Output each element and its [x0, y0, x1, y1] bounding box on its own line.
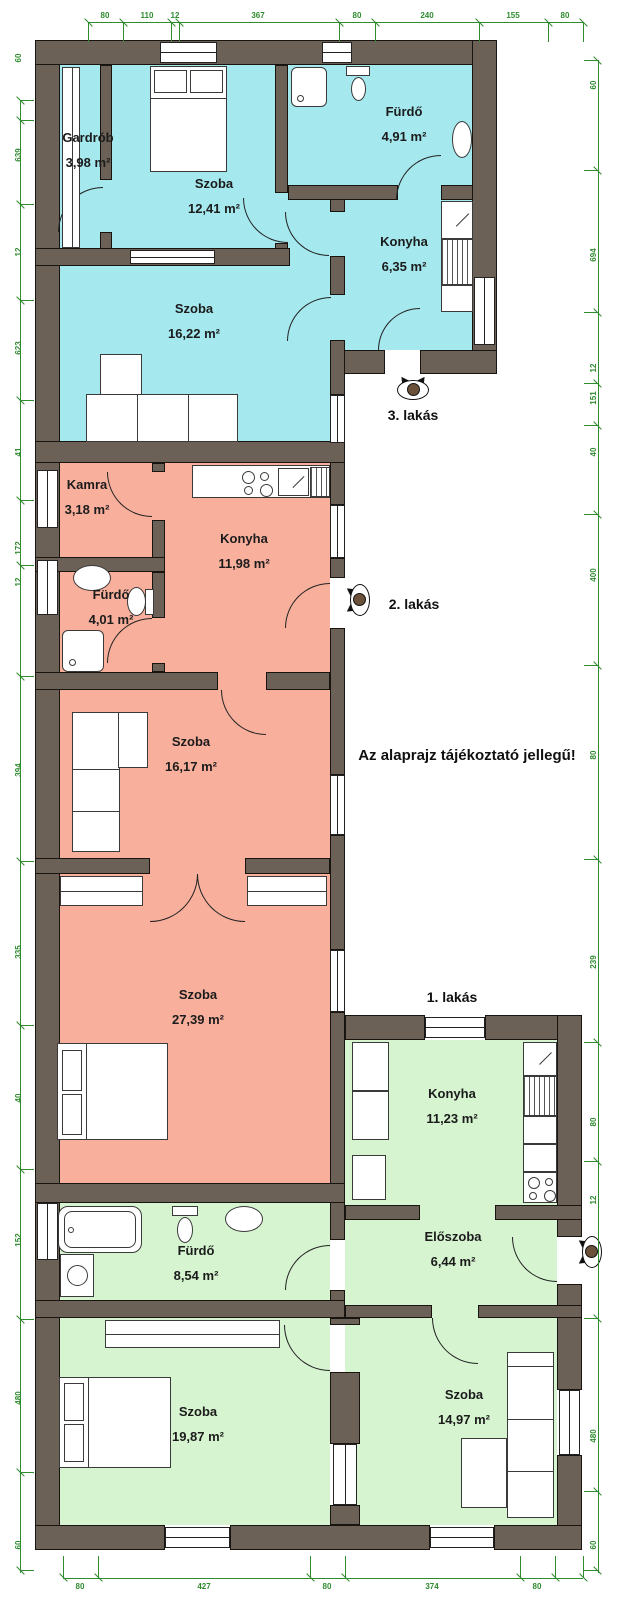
dimension-tick	[88, 22, 89, 42]
dimension-line-right	[598, 60, 599, 1573]
room-name: Fürdő	[334, 104, 474, 120]
wardrobe	[247, 876, 327, 906]
dimension-label: 80	[88, 11, 122, 21]
room-area: 27,39 m²	[172, 1012, 224, 1027]
stove	[523, 1172, 557, 1203]
dimension-tick	[548, 22, 549, 42]
exterior-wall-right-bottom	[557, 1015, 582, 1237]
room-area: 16,22 m²	[168, 326, 220, 341]
dimension-label: 155	[496, 11, 530, 21]
room-name: Konyha	[174, 531, 314, 547]
sofa-chaise	[100, 354, 142, 398]
room-name: Kamra	[17, 477, 157, 493]
wall-segment	[420, 350, 497, 374]
dimension-label: 60	[14, 41, 24, 75]
kitchen-counter	[192, 465, 330, 498]
window	[37, 1203, 58, 1260]
room-area: 6,35 m²	[382, 259, 427, 274]
wall-segment	[35, 1300, 345, 1318]
sofa-chaise	[461, 1438, 507, 1508]
stove-burner	[545, 1178, 553, 1186]
floor-plan: Gardrób3,98 m² Szoba12,41 m² Fürdő4,91 m…	[0, 0, 634, 1600]
wall-segment	[330, 1012, 345, 1240]
kitchen-cabinet	[441, 285, 473, 312]
toilet	[172, 1206, 198, 1216]
dimension-label: 60	[589, 1528, 599, 1562]
shower	[62, 630, 104, 672]
exterior-wall-left	[35, 40, 60, 1550]
wardrobe	[60, 876, 143, 906]
dimension-tick	[20, 120, 34, 121]
sofa	[72, 712, 120, 852]
dimension-label: 80	[589, 738, 599, 772]
pillow	[190, 70, 223, 93]
window	[330, 950, 345, 1012]
entrance-marker-apartment-3	[395, 376, 431, 400]
dimension-tick	[584, 514, 598, 515]
dimension-tick	[584, 312, 598, 313]
room-area: 6,44 m²	[431, 1254, 476, 1269]
dimension-tick	[584, 665, 598, 666]
interior-window	[130, 250, 215, 264]
wall-segment	[495, 1205, 582, 1220]
dimension-tick	[584, 1491, 598, 1492]
wall-segment	[35, 672, 218, 690]
dimension-tick	[63, 1556, 64, 1578]
cabinet	[352, 1155, 386, 1200]
dimension-tick	[20, 1169, 34, 1170]
kitchen-sink	[278, 468, 309, 496]
dimension-tick	[20, 1319, 34, 1320]
dimension-label: 12	[158, 11, 192, 21]
pillow	[64, 1424, 84, 1462]
dimension-tick	[479, 22, 480, 42]
room-label-konyha-1198: Konyha11,98 m²	[174, 531, 314, 572]
wall-segment	[345, 1015, 425, 1040]
dimension-label: 40	[589, 435, 599, 469]
window	[425, 1017, 485, 1038]
dimension-label: 152	[14, 1223, 24, 1257]
dimension-label: 80	[548, 11, 582, 21]
dimension-label: 374	[415, 1582, 449, 1592]
disclaimer-text: Az alaprajz tájékoztató jellegű!	[317, 747, 617, 764]
pillow	[154, 70, 187, 93]
room-label-szoba-1987: Szoba19,87 m²	[128, 1404, 268, 1445]
room-name: Szoba	[144, 176, 284, 192]
dimension-label: 12	[589, 1183, 599, 1217]
wall-segment	[330, 835, 345, 950]
window	[430, 1527, 494, 1548]
exterior-wall-bottom	[35, 1525, 165, 1550]
dimension-line-top	[88, 22, 583, 23]
dimension-tick	[584, 1318, 598, 1319]
dish-rack	[523, 1076, 557, 1116]
dimension-label: 239	[589, 945, 599, 979]
room-area: 19,87 m²	[172, 1429, 224, 1444]
apartment-label-3: 3. lakás	[343, 407, 483, 423]
wall-segment	[330, 1318, 360, 1325]
entrance-dot-icon	[407, 383, 420, 396]
wall-segment	[330, 1372, 360, 1444]
dimension-label: 60	[14, 1528, 24, 1562]
exterior-wall-bottom	[494, 1525, 582, 1550]
room-area: 4,01 m²	[89, 612, 134, 627]
wall-segment	[152, 520, 165, 560]
room-name: Szoba	[128, 987, 268, 1003]
wall-segment	[275, 65, 288, 193]
sofa	[507, 1352, 554, 1518]
pillow	[62, 1094, 82, 1135]
interior-window	[333, 1444, 357, 1505]
dimension-label: 480	[14, 1381, 24, 1415]
wall-segment	[35, 858, 150, 874]
room-name: Szoba	[394, 1387, 534, 1403]
window	[559, 1390, 580, 1455]
dimension-tick	[98, 1556, 99, 1578]
room-label-furdo-401: Fürdő4,01 m²	[41, 587, 181, 628]
room-name: Konyha	[382, 1086, 522, 1102]
apartment-label-1: 1. lakás	[382, 989, 522, 1005]
dimension-tick	[20, 1472, 34, 1473]
wall-segment	[345, 1205, 420, 1220]
dimension-tick	[20, 204, 34, 205]
wall-segment	[478, 1305, 582, 1318]
dimension-label: 151	[589, 381, 599, 415]
apartment-divider-wall	[35, 1183, 345, 1203]
room-name: Konyha	[334, 234, 474, 250]
toilet	[351, 77, 366, 101]
room-area: 12,41 m²	[188, 201, 240, 216]
room-name: Szoba	[124, 301, 264, 317]
dimension-tick	[20, 861, 34, 862]
room-area: 3,18 m²	[65, 502, 110, 517]
dimension-tick	[20, 300, 34, 301]
cabinet	[352, 1042, 389, 1091]
room-area: 11,98 m²	[218, 556, 269, 571]
dimension-tick	[584, 1042, 598, 1043]
room-area: 8,54 m²	[174, 1268, 219, 1283]
dimension-tick	[171, 22, 172, 42]
dimension-label: 41	[14, 435, 24, 469]
dimension-label: 80	[520, 1582, 554, 1592]
room-name: Gardrób	[18, 130, 158, 146]
stove-burner	[528, 1177, 540, 1189]
double-bed	[57, 1043, 168, 1140]
wall-segment	[152, 463, 165, 472]
dimension-label: 60	[589, 68, 599, 102]
dimension-label: 80	[63, 1582, 97, 1592]
wall-segment	[152, 663, 165, 672]
dimension-label: 80	[310, 1582, 344, 1592]
room-label-gardrob: Gardrób3,98 m²	[18, 130, 158, 171]
dimension-tick	[339, 22, 340, 42]
kitchen-cabinet	[523, 1116, 557, 1144]
dimension-tick	[584, 60, 598, 61]
dimension-tick	[345, 1556, 346, 1578]
room-area: 4,91 m²	[382, 129, 427, 144]
room-area: 11,23 m²	[426, 1111, 477, 1126]
dish-rack	[310, 467, 330, 497]
apartment-label-2: 2. lakás	[344, 596, 484, 612]
shower	[291, 67, 327, 107]
wall-segment	[330, 558, 345, 578]
stove-burner	[260, 472, 269, 481]
exterior-wall-top	[35, 40, 497, 65]
window	[322, 42, 352, 63]
room-label-konyha-635: Konyha6,35 m²	[334, 234, 474, 275]
dimension-tick	[584, 1570, 598, 1571]
room-name: Fürdő	[126, 1243, 266, 1259]
dimension-tick	[179, 22, 180, 42]
room-area: 3,98 m²	[66, 155, 111, 170]
washing-machine	[60, 1254, 94, 1297]
wall-segment	[266, 672, 330, 690]
exterior-wall-bottom	[230, 1525, 430, 1550]
wall-segment	[330, 1505, 360, 1525]
stove-burner	[244, 486, 253, 495]
dimension-tick	[375, 22, 376, 42]
dimension-tick	[310, 1556, 311, 1578]
room-label-szoba-1617: Szoba16,17 m²	[121, 734, 261, 775]
kitchen-sink	[523, 1042, 557, 1076]
room-label-furdo-854: Fürdő8,54 m²	[126, 1243, 266, 1284]
room-label-furdo-491: Fürdő4,91 m²	[334, 104, 474, 145]
dimension-tick	[20, 500, 34, 501]
dimension-label: 240	[410, 11, 444, 21]
dimension-tick	[520, 1556, 521, 1578]
dimension-label: 400	[589, 558, 599, 592]
dimension-label: 335	[14, 935, 24, 969]
dimension-tick	[20, 676, 34, 677]
window	[474, 277, 495, 345]
pillow	[64, 1383, 84, 1421]
dimension-label: 367	[241, 11, 275, 21]
dimension-tick	[20, 1570, 34, 1571]
room-label-szoba-1497: Szoba14,97 m²	[394, 1387, 534, 1428]
dimension-label: 12	[14, 565, 24, 599]
room-area: 16,17 m²	[165, 759, 217, 774]
wall-segment	[441, 185, 473, 200]
sofa	[86, 394, 238, 442]
washbasin	[225, 1206, 263, 1232]
dimension-tick	[123, 22, 124, 42]
dimension-label: 80	[340, 11, 374, 21]
dimension-tick	[584, 425, 598, 426]
dimension-line-left	[20, 100, 21, 1573]
room-area: 14,97 m²	[438, 1412, 490, 1427]
dimension-label: 394	[14, 753, 24, 787]
window	[330, 505, 345, 558]
toilet	[346, 66, 370, 76]
room-name: Szoba	[121, 734, 261, 750]
wall-segment	[330, 340, 345, 395]
stove-burner	[544, 1190, 556, 1202]
room-label-szoba-2739: Szoba27,39 m²	[128, 987, 268, 1028]
dimension-label: 639	[14, 138, 24, 172]
exterior-wall-right-bottom	[557, 1284, 582, 1390]
dimension-tick	[20, 100, 34, 101]
room-name: Fürdő	[41, 587, 181, 603]
dimension-tick	[583, 22, 584, 42]
dimension-tick	[20, 400, 34, 401]
stove-burner	[260, 484, 273, 497]
dimension-label: 80	[589, 1105, 599, 1139]
room-label-kamra: Kamra3,18 m²	[17, 477, 157, 518]
dimension-tick	[20, 1025, 34, 1026]
room-label-konyha-1123: Konyha11,23 m²	[382, 1086, 522, 1127]
pillow	[62, 1050, 82, 1091]
room-name: Szoba	[128, 1404, 268, 1420]
apartment-divider-wall	[35, 441, 345, 463]
window	[160, 42, 217, 63]
room-label-szoba-1241: Szoba12,41 m²	[144, 176, 284, 217]
dimension-line-bottom	[63, 1578, 583, 1579]
kitchen-cabinet	[523, 1144, 557, 1172]
dimension-tick	[583, 1556, 584, 1578]
double-bed	[150, 66, 227, 172]
room-label-szoba-1622: Szoba16,22 m²	[124, 301, 264, 342]
dimension-label: 40	[14, 1081, 24, 1115]
window	[165, 1527, 230, 1548]
dimension-tick	[584, 170, 598, 171]
stove-burner	[242, 471, 255, 484]
wall-segment	[245, 858, 330, 874]
dimension-label: 12	[14, 235, 24, 269]
wall-segment	[288, 185, 398, 200]
dimension-label: 480	[589, 1419, 599, 1453]
dimension-label: 172	[14, 531, 24, 565]
dimension-label: 12	[589, 351, 599, 385]
dimension-tick	[584, 859, 598, 860]
toilet	[177, 1217, 193, 1243]
room-label-eloszoba: Előszoba6,44 m²	[383, 1229, 523, 1270]
window	[330, 775, 345, 835]
dimension-tick	[584, 1161, 598, 1162]
wardrobe	[105, 1320, 280, 1348]
dimension-tick	[555, 1556, 556, 1578]
dimension-label: 694	[589, 238, 599, 272]
dimension-label: 623	[14, 331, 24, 365]
dimension-label: 427	[187, 1582, 221, 1592]
bathtub-drain	[68, 1227, 74, 1233]
wall-segment	[345, 1305, 432, 1318]
stove-burner	[529, 1192, 537, 1200]
room-name: Előszoba	[383, 1229, 523, 1245]
